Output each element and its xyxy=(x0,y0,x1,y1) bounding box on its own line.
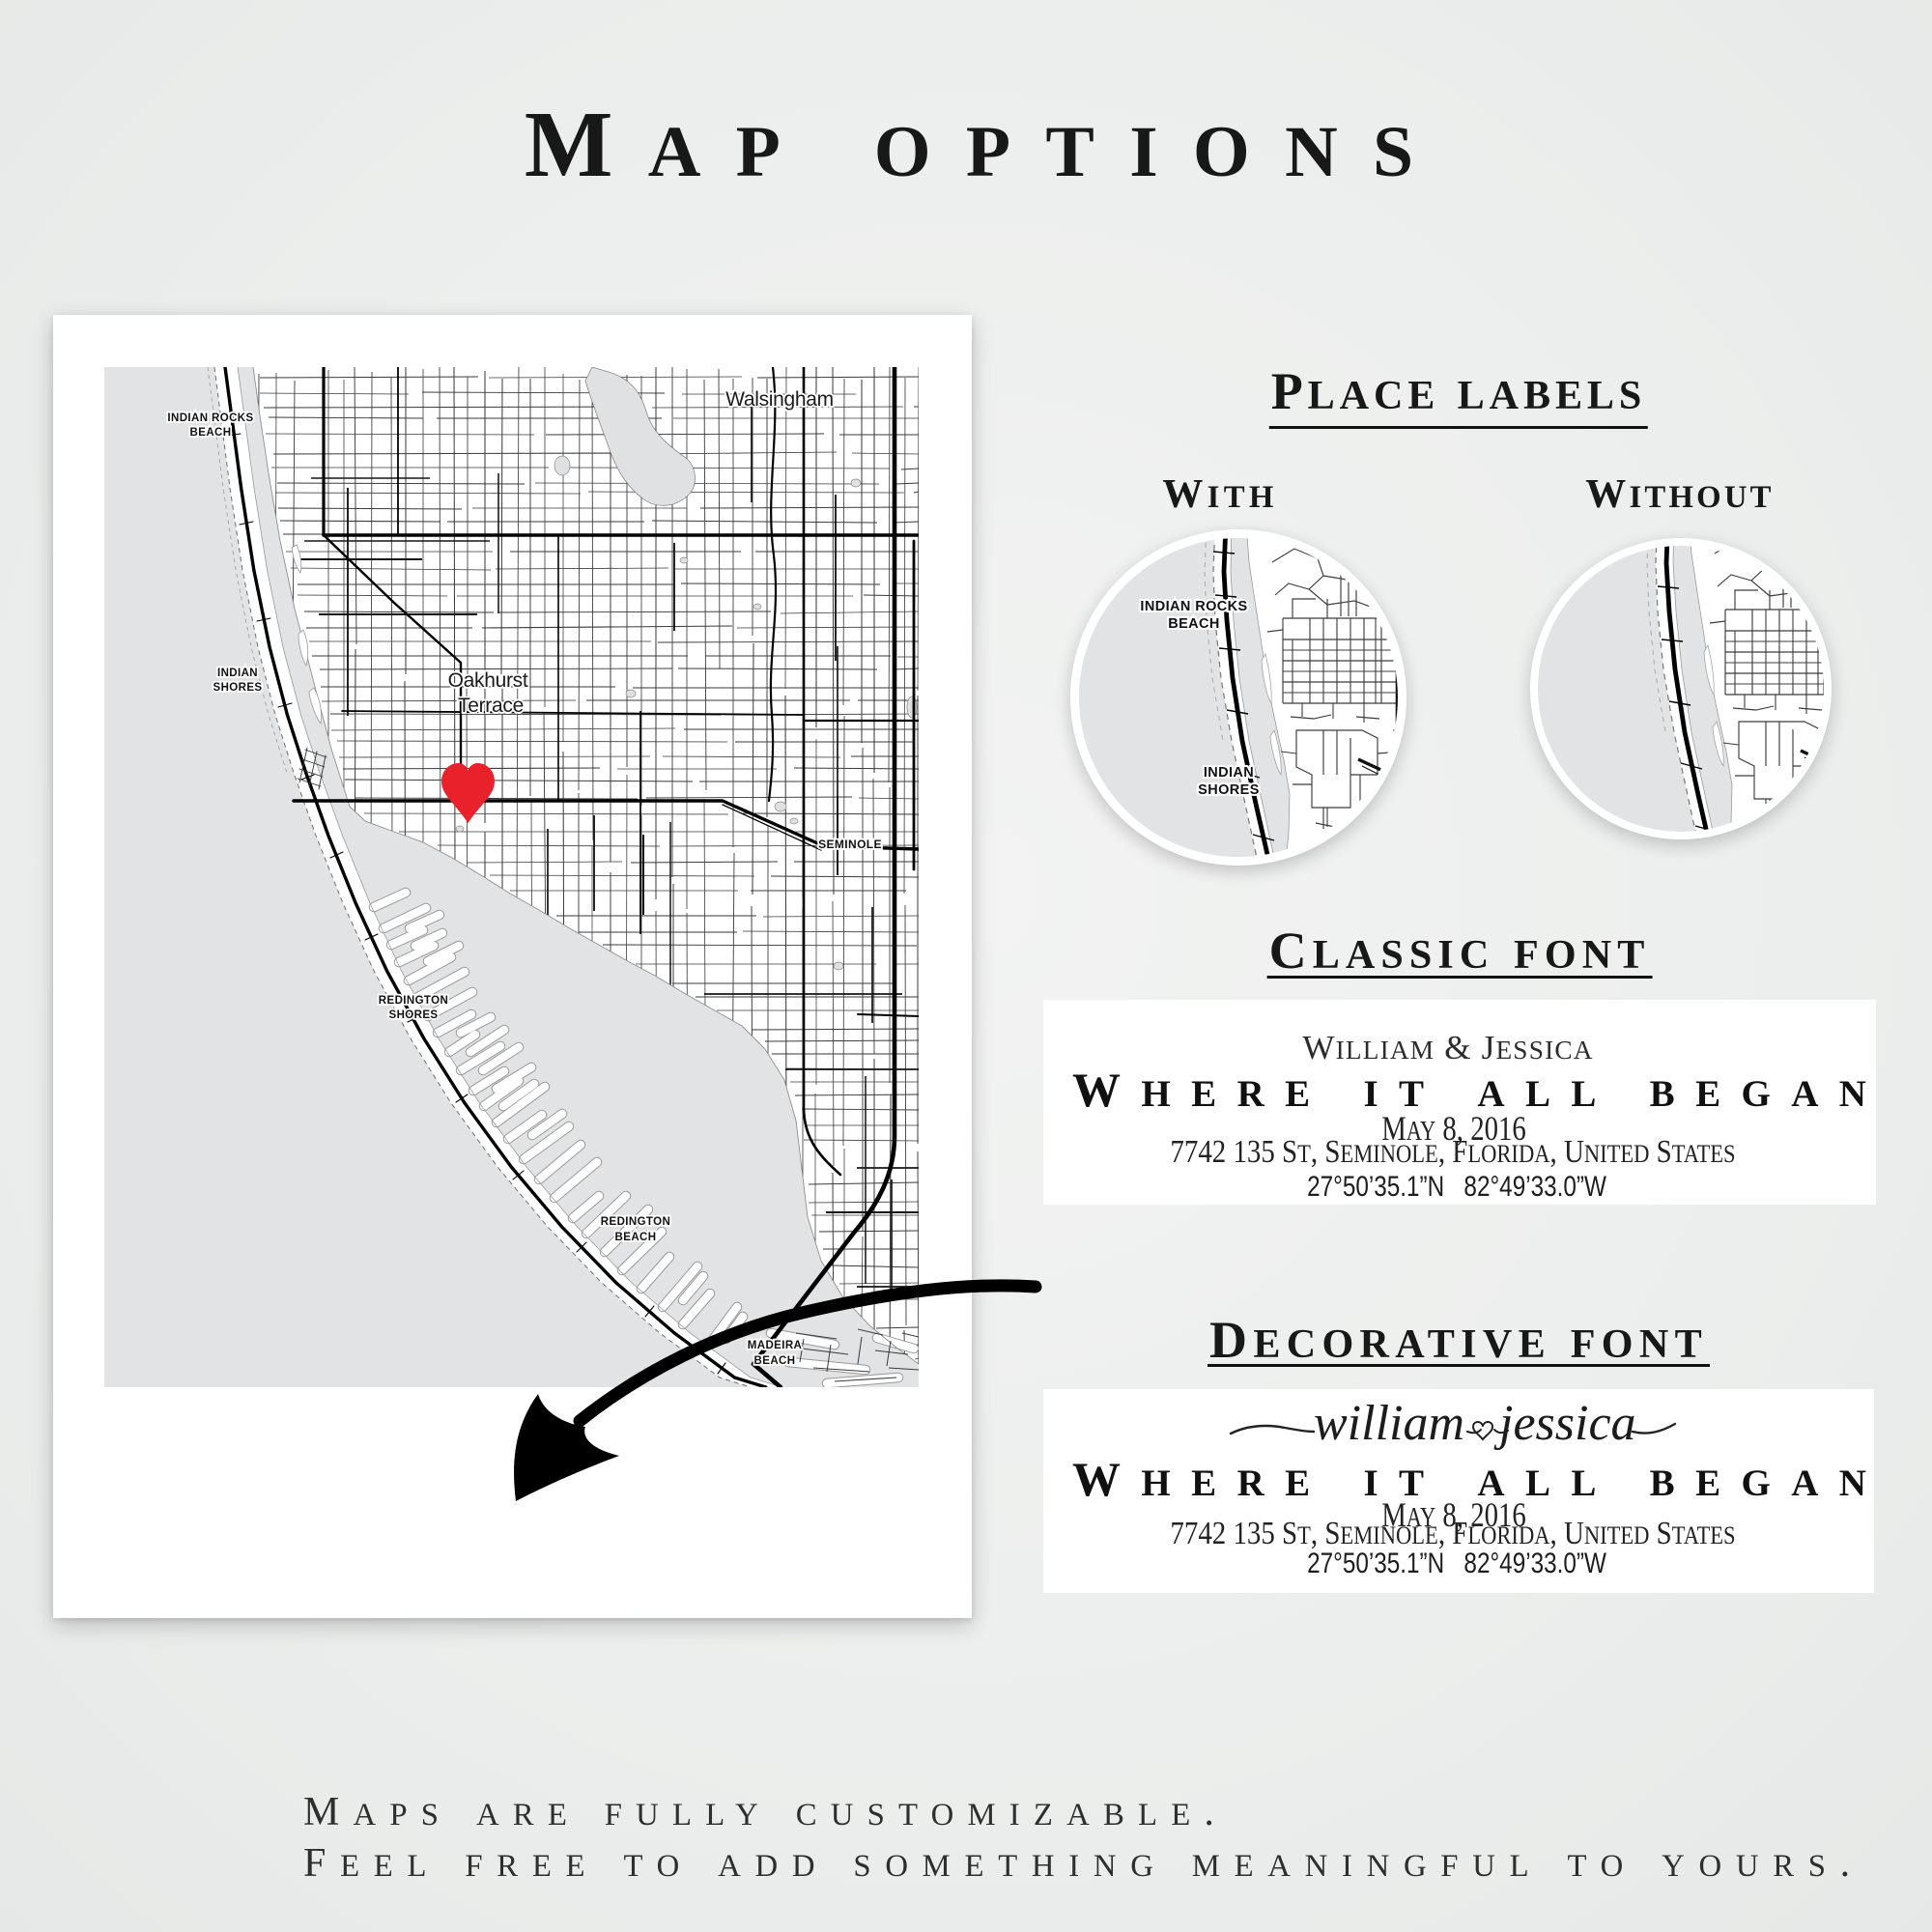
svg-text:INDIAN ROCKS: INDIAN ROCKS xyxy=(167,412,253,424)
svg-text:BEACH: BEACH xyxy=(1168,616,1220,632)
svg-text:SHORES: SHORES xyxy=(213,682,263,694)
svg-text:REDINGTON: REDINGTON xyxy=(601,1216,670,1228)
svg-text:Walsingham: Walsingham xyxy=(725,388,834,411)
svg-text:SHORES: SHORES xyxy=(389,1009,439,1021)
svg-text:Terrace: Terrace xyxy=(458,695,524,717)
svg-text:INDIAN ROCKS: INDIAN ROCKS xyxy=(1140,599,1247,614)
svg-text:REDINGTON: REDINGTON xyxy=(379,995,448,1007)
svg-text:jessica: jessica xyxy=(1493,1396,1636,1451)
svg-text:INDIAN: INDIAN xyxy=(1204,765,1254,781)
svg-text:Oakhurst: Oakhurst xyxy=(448,669,528,692)
svg-text:INDIAN: INDIAN xyxy=(217,668,258,679)
svg-text:william: william xyxy=(1314,1396,1464,1451)
svg-text:BEACH: BEACH xyxy=(190,427,232,439)
svg-text:SHORES: SHORES xyxy=(1198,782,1260,798)
svg-text:SEMINOLE: SEMINOLE xyxy=(818,838,882,851)
